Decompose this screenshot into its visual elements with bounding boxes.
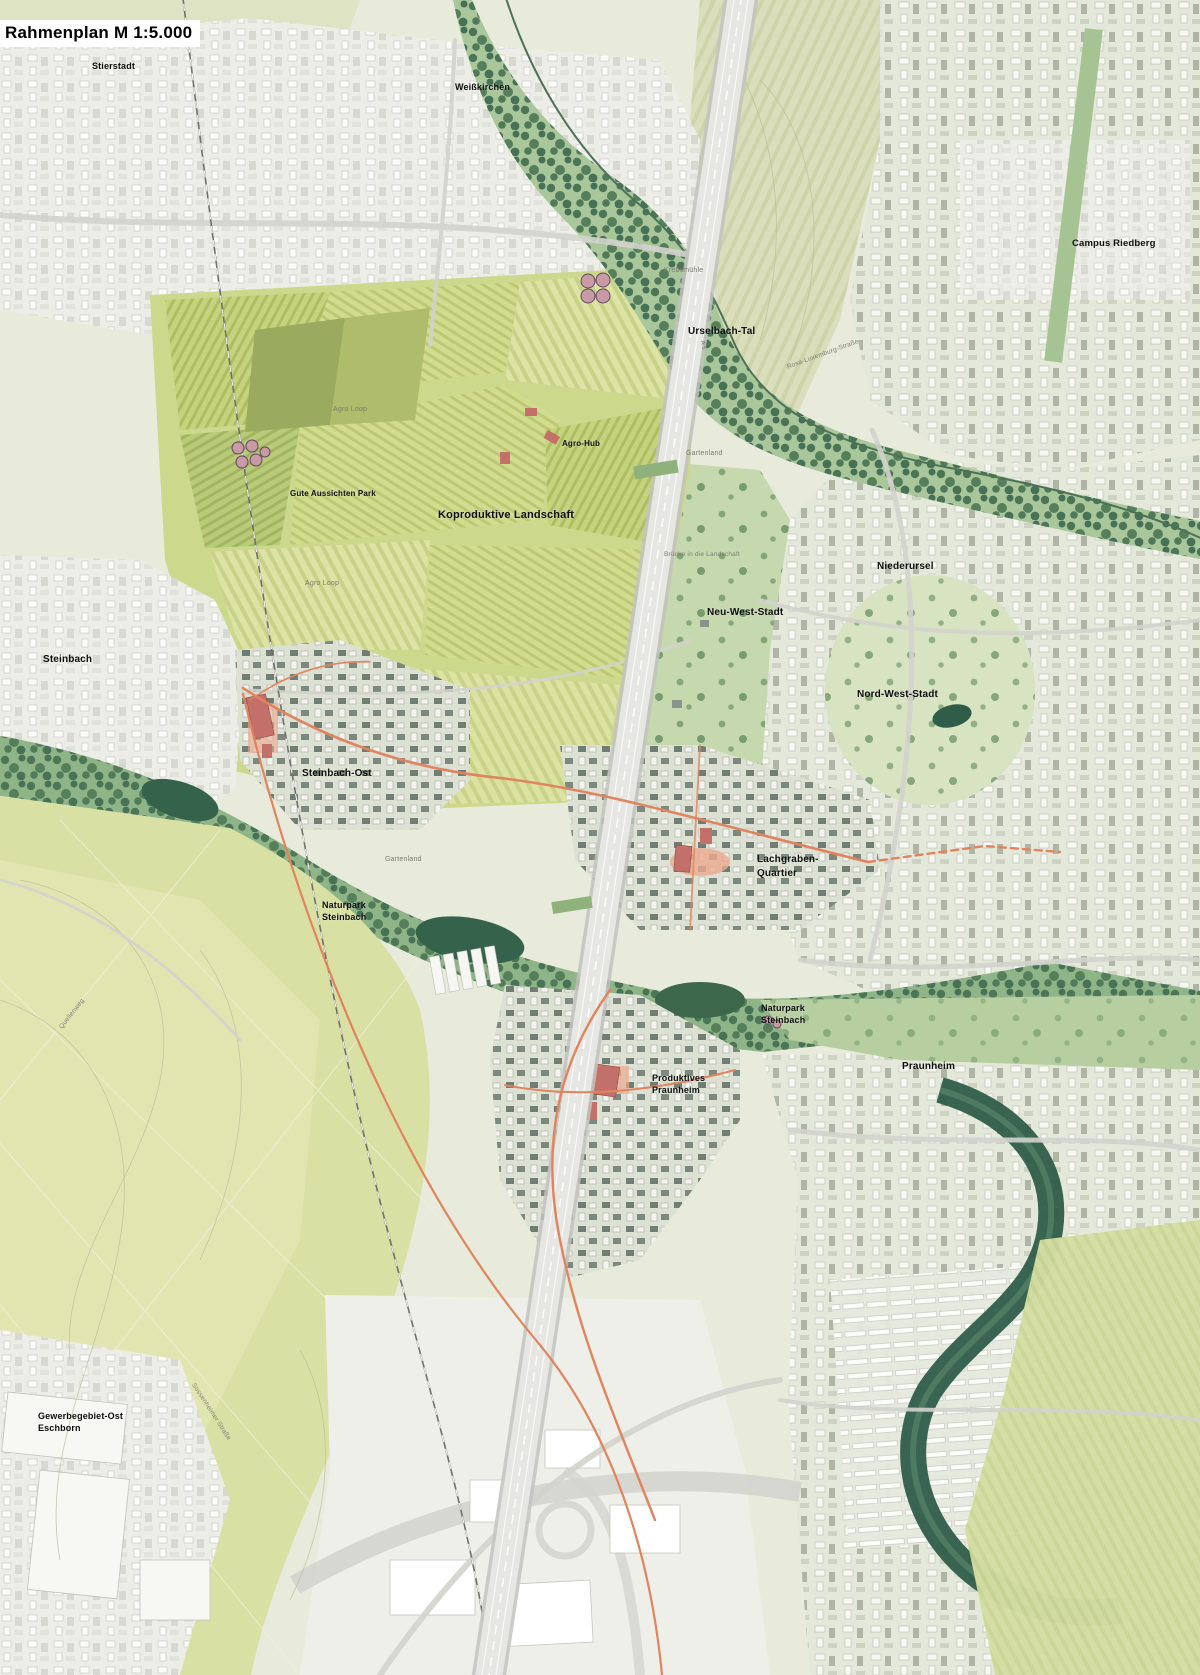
map-label-agro-loop-nord: Agro Loop bbox=[333, 405, 367, 414]
map-label-lachgraben-quartier: Lachgraben- Quartier bbox=[757, 853, 819, 880]
map-label-gute-aussichten-park: Gute Aussichten Park bbox=[290, 489, 376, 500]
map-label-steinbach: Steinbach bbox=[43, 653, 92, 667]
map-label-gewerbegebiet-ost-eschborn: Gewerbegebiet-Ost Eschborn bbox=[38, 1410, 123, 1434]
map-label-agro-loop-sued: Agro Loop bbox=[305, 579, 339, 588]
map-label-autobahn-a5-marker: A 5 bbox=[698, 340, 707, 350]
map-label-campus-riedberg: Campus Riedberg bbox=[1072, 238, 1156, 251]
masterplan-map: StierstadtWeißkirchenCampus RiedbergUrse… bbox=[0, 0, 1200, 1675]
plan-title: Rahmenplan M 1:5.000 bbox=[0, 20, 200, 47]
map-label-quellenweg: Quellenweg bbox=[58, 997, 87, 1031]
map-label-niederursel: Niederursel bbox=[877, 560, 934, 574]
map-label-weisskirchen: Weißkirchen bbox=[455, 81, 510, 93]
map-label-produktives-praunheim: Produktives Praunheim bbox=[652, 1072, 705, 1096]
map-label-nord-west-stadt: Nord-West-Stadt bbox=[857, 688, 938, 702]
map-label-gartenland-ost: Gartenland bbox=[686, 449, 723, 458]
map-label-urselbach-tal: Urselbach-Tal bbox=[688, 325, 755, 339]
map-label-steinbach-ost: Steinbach-Ost bbox=[302, 767, 372, 781]
map-label-agro-hub: Agro-Hub bbox=[562, 439, 600, 450]
map-label-krebsmuehle: Krebsmühle bbox=[664, 266, 703, 275]
map-label-naturpark-steinbach-west: Naturpark Steinbach bbox=[322, 899, 366, 923]
map-label-neu-west-stadt: Neu-West-Stadt bbox=[707, 606, 783, 620]
map-labels-layer: StierstadtWeißkirchenCampus RiedbergUrse… bbox=[0, 0, 1200, 1675]
map-label-bruecke-landschaft: Brücke in die Landschaft bbox=[664, 551, 740, 560]
map-label-gartenland-west: Gartenland bbox=[385, 855, 422, 864]
map-label-stierstadt: Stierstadt bbox=[92, 60, 135, 72]
map-label-koproduktive-landschaft: Koproduktive Landschaft bbox=[438, 508, 574, 523]
map-label-naturpark-steinbach-ost: Naturpark Steinbach bbox=[761, 1002, 805, 1026]
map-label-rosa-luxemburg-strasse: Rosa-Luxemburg-Straße bbox=[786, 338, 860, 372]
map-label-sossenheimer-strasse: Sossenheimer Straße bbox=[189, 1382, 233, 1443]
map-label-praunheim: Praunheim bbox=[902, 1060, 955, 1074]
